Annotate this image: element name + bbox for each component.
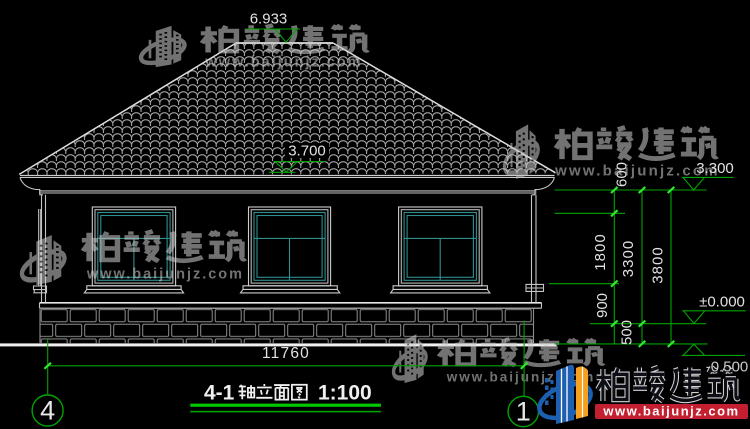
svg-text:6.933: 6.933 [250,11,288,28]
svg-text:4-1: 4-1 [204,382,235,405]
svg-text:1800: 1800 [592,233,609,270]
svg-text:1: 1 [516,397,531,427]
svg-text:3300: 3300 [620,240,637,277]
svg-text:500: 500 [619,320,636,345]
svg-text:-0.500: -0.500 [706,359,749,376]
svg-text:±0.000: ±0.000 [699,294,745,311]
svg-text:4: 4 [40,396,55,426]
svg-text:3800: 3800 [650,246,667,283]
svg-text:www.baijunjz.com: www.baijunjz.com [204,55,362,71]
svg-text:www.baijunjz.com: www.baijunjz.com [86,267,244,283]
svg-text:11760: 11760 [262,345,310,362]
svg-text:3.300: 3.300 [696,160,734,177]
svg-text:1:100: 1:100 [318,382,372,405]
svg-text:www.baijunjz.com: www.baijunjz.com [602,404,739,419]
svg-text:3.700: 3.700 [288,143,326,160]
svg-text:600: 600 [614,162,631,187]
svg-text:900: 900 [594,293,611,318]
